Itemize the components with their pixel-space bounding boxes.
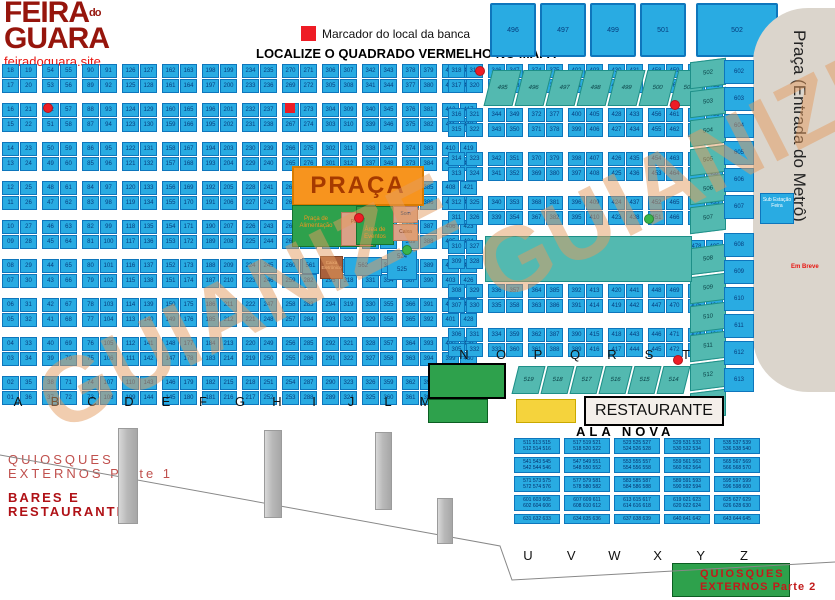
stall-cell: 378 <box>546 123 563 137</box>
stall-cell: 382 <box>546 211 563 225</box>
stall-cell: 436 <box>626 167 643 181</box>
stall-cell: 22 <box>20 118 37 132</box>
logo-line2: GUARA <box>4 26 164 52</box>
stall-cell: 380 <box>420 79 437 93</box>
stall-cell: 257 <box>282 313 299 327</box>
stall-cell: 233 <box>242 79 259 93</box>
stall-cell: 269 <box>282 79 299 93</box>
events-box: Área de Eventos <box>356 206 394 245</box>
stall-cell: 203 <box>220 142 237 156</box>
strip-cell: 610 <box>724 287 754 311</box>
stall-cell: 363 <box>528 299 545 313</box>
map-marker-dot <box>402 245 412 255</box>
green-block-2 <box>428 399 488 423</box>
stall-cell: 68 <box>60 313 77 327</box>
quiosques2-line1: QUIOSQUES <box>700 568 785 580</box>
stall-cell: 420 <box>608 284 625 298</box>
stall-cell: 355 <box>380 298 397 312</box>
stall-cell: 328 <box>362 337 379 351</box>
stall-column-N: 3183193173203163213153223143233133243123… <box>448 64 483 372</box>
stall-cell: 153 <box>162 235 179 249</box>
stall-cell: 327 <box>466 240 483 254</box>
stall-cell: 275 <box>300 142 317 156</box>
stall-cell: 221 <box>242 313 259 327</box>
column-letter-L: L <box>372 394 404 409</box>
stall-cell: 392 <box>568 284 585 298</box>
stall-cell: 173 <box>180 259 197 273</box>
quiosques2-line2: EXTERNOS Parte 2 <box>700 581 816 593</box>
strip-cell: 512 <box>690 360 726 391</box>
stall-column-G: 2342352332362322372312382302392292402282… <box>242 64 277 415</box>
stall-cell: 63 <box>60 220 77 234</box>
stall-cell: 51 <box>42 118 59 132</box>
stall-cell: 20 <box>20 79 37 93</box>
ala-nova-stall-box: 601 603 605602 604 606 <box>514 495 560 511</box>
stall-cell: 111 <box>122 352 139 366</box>
stall-cell: 39 <box>42 352 59 366</box>
stall-cell: 131 <box>140 142 157 156</box>
stall-cell: 466 <box>666 211 683 225</box>
ala-nova-stall-box: 640 641 642 <box>664 514 710 524</box>
column-letter-H: H <box>261 394 293 409</box>
stall-cell: 151 <box>162 274 179 288</box>
stall-cell: 320 <box>466 79 483 93</box>
stall-cell: 237 <box>260 103 277 117</box>
stall-cell: 171 <box>180 220 197 234</box>
stall-cell: 03 <box>2 352 19 366</box>
strip-cell: 502 <box>690 58 726 89</box>
stall-cell: 324 <box>466 167 483 181</box>
column-letter-D: D <box>113 394 145 409</box>
map-marker-dot <box>43 103 53 113</box>
sound-box: Som <box>393 206 418 223</box>
stall-cell: 377 <box>402 79 419 93</box>
ala-nova-stall-box: 559 561 563560 562 564 <box>664 457 710 473</box>
stall-cell: 318 <box>448 64 465 78</box>
stall-cell: 398 <box>568 152 585 166</box>
stall-cell: 415 <box>586 328 603 342</box>
stall-cell: 291 <box>322 352 339 366</box>
stall-cell: 152 <box>162 259 179 273</box>
stall-cell: 80 <box>82 259 99 273</box>
stall-cell: 35 <box>20 376 37 390</box>
stall-cell: 133 <box>140 181 157 195</box>
stall-cell: 425 <box>608 167 625 181</box>
stall-cell: 04 <box>2 337 19 351</box>
stall-cell: 315 <box>448 123 465 137</box>
column-letter-U: U <box>512 548 544 563</box>
stall-cell: 330 <box>362 298 379 312</box>
stall-cell: 346 <box>380 118 397 132</box>
stall-cell: 28 <box>20 235 37 249</box>
stall-cell: 231 <box>242 118 259 132</box>
stall-cell: 367 <box>528 211 545 225</box>
stall-cell: 186 <box>202 298 219 312</box>
stall-cell: 48 <box>42 181 59 195</box>
cash-box: Caixa <box>393 224 418 241</box>
stall-column-A: 1819172016211522142313241225112610270928… <box>2 64 37 415</box>
stall-cell: 352 <box>506 167 523 181</box>
stall-cell: 75 <box>82 352 99 366</box>
stall-cell: 21 <box>20 103 37 117</box>
column-letter-Q: Q <box>559 347 591 362</box>
stall-column-O: 3463473453483443493433503423513413523403… <box>488 64 523 372</box>
stall-cell: 159 <box>162 118 179 132</box>
strip-cell: 511 <box>690 331 726 362</box>
stall-cell: 317 <box>448 79 465 93</box>
stall-cell: 99 <box>100 220 117 234</box>
ala-nova-stall-box: 553 555 557554 556 558 <box>614 457 660 473</box>
ala-nova-stall-box: 637 638 639 <box>614 514 660 524</box>
stall-cell: 200 <box>220 79 237 93</box>
stall-cell: 143 <box>140 376 157 390</box>
stall-cell: 287 <box>300 376 317 390</box>
stall-cell: 94 <box>100 118 117 132</box>
column-letter-V: V <box>555 548 587 563</box>
strip-cell: 606 <box>724 168 754 192</box>
stall-cell: 393 <box>420 337 437 351</box>
praca-box: PRAÇA <box>292 166 424 206</box>
stall-cell: 170 <box>180 196 197 210</box>
column-letter-F: F <box>187 394 219 409</box>
stall-cell: 146 <box>162 376 179 390</box>
stall-cell: 164 <box>180 79 197 93</box>
stall-cell: 59 <box>60 142 77 156</box>
stall-cell: 82 <box>82 220 99 234</box>
stall-cell: 321 <box>340 337 357 351</box>
ala-nova-stall-box: 529 531 533530 532 534 <box>664 438 710 454</box>
stall-cell: 286 <box>300 352 317 366</box>
stall-cell: 236 <box>260 79 277 93</box>
stall-cell: 46 <box>42 220 59 234</box>
stall-cell: 117 <box>122 235 139 249</box>
stall-cell: 189 <box>202 235 219 249</box>
stall-cell: 377 <box>546 108 563 122</box>
ala-nova-stall-box: 547 549 551548 550 552 <box>564 457 610 473</box>
ala-nova-stall-box: 511 513 515512 514 516 <box>514 438 560 454</box>
stall-cell: 329 <box>466 284 483 298</box>
stall-cell: 400 <box>568 108 585 122</box>
stall-cell: 83 <box>82 196 99 210</box>
logo-mid: do <box>89 7 100 19</box>
stall-cell: 185 <box>202 313 219 327</box>
substation-box: Sub Estação Feira <box>760 193 794 224</box>
bares-line1: BARES E <box>8 490 80 505</box>
stall-cell: 307 <box>340 64 357 78</box>
stall-cell: 66 <box>60 274 77 288</box>
stall-cell: 358 <box>380 352 397 366</box>
stall-cell: 244 <box>260 235 277 249</box>
stall-cell: 95 <box>100 142 117 156</box>
stall-cell: 55 <box>60 64 77 78</box>
stall-cell: 69 <box>60 337 77 351</box>
stall-cell: 207 <box>220 220 237 234</box>
stall-cell: 102 <box>100 274 117 288</box>
stall-cell: 89 <box>82 79 99 93</box>
pillar <box>264 430 282 518</box>
stall-cell: 165 <box>180 103 197 117</box>
stall-cell: 142 <box>140 352 157 366</box>
stall-cell: 107 <box>100 376 117 390</box>
stall-cell: 382 <box>420 118 437 132</box>
stall-cell: 157 <box>162 157 179 171</box>
stall-cell: 140 <box>140 313 157 327</box>
stall-cell: 245 <box>260 259 277 273</box>
stall-cell: 130 <box>140 118 157 132</box>
stall-cell: 391 <box>420 298 437 312</box>
stall-cell: 344 <box>488 108 505 122</box>
stall-cell: 215 <box>220 376 237 390</box>
stall-cell: 338 <box>362 142 379 156</box>
stall-cell: 182 <box>202 376 219 390</box>
stall-cell: 96 <box>100 157 117 171</box>
stall-cell: 311 <box>448 211 465 225</box>
strip-cell: 504 <box>690 116 726 147</box>
stall-cell: 64 <box>60 235 77 249</box>
stall-cell: 343 <box>380 64 397 78</box>
stall-cell: 325 <box>466 196 483 210</box>
stall-cell: 397 <box>568 167 585 181</box>
stall-cell: 53 <box>42 79 59 93</box>
column-letter-I: I <box>298 394 330 409</box>
stall-cell: 86 <box>82 142 99 156</box>
strip-cell: 510 <box>690 302 726 333</box>
stall-cell: 305 <box>322 79 339 93</box>
stall-cell: 407 <box>586 152 603 166</box>
stall-cell: 57 <box>60 103 77 117</box>
strip-cell: 604 <box>724 114 754 138</box>
stall-cell: 314 <box>448 152 465 166</box>
stall-cell: 32 <box>20 313 37 327</box>
ala-nova-stall-box: 517 519 521518 520 522 <box>564 438 610 454</box>
stall-cell: 327 <box>362 352 379 366</box>
stall-cell: 368 <box>528 196 545 210</box>
ala-nova-stall-box: 631 632 633 <box>514 514 560 524</box>
empty-teal-block <box>485 236 692 282</box>
stall-cell: 190 <box>202 220 219 234</box>
stall-cell: 218 <box>242 376 259 390</box>
column-letter-A: A <box>2 394 34 409</box>
stall-cell: 414 <box>586 299 603 313</box>
stall-cell: 375 <box>402 118 419 132</box>
column-letter-G: G <box>224 394 256 409</box>
stall-cell: 175 <box>180 298 197 312</box>
stall-cell: 204 <box>220 157 237 171</box>
strip-cell: 609 <box>724 260 754 284</box>
stall-cell: 148 <box>162 337 179 351</box>
stall-cell: 381 <box>546 196 563 210</box>
ala-nova-stall-box: 619 621 623620 622 624 <box>664 495 710 511</box>
stall-cell: 118 <box>122 220 139 234</box>
ala-nova-stall-box: 634 635 636 <box>564 514 610 524</box>
stall-cell: 406 <box>586 123 603 137</box>
stall-cell: 43 <box>42 274 59 288</box>
stall-cell: 302 <box>322 142 339 156</box>
column-letter-O: O <box>485 347 517 362</box>
stall-cell: 388 <box>420 235 437 249</box>
stall-grid-n-t: 3183193173203163213153223143233133243123… <box>448 64 723 372</box>
stall-cell: 359 <box>380 376 397 390</box>
stall-column-F: 1981991972001962011952021942031932041922… <box>202 64 237 415</box>
top-stall-box: 501 <box>640 3 686 57</box>
stall-cell: 310 <box>448 240 465 254</box>
stall-cell: 49 <box>42 157 59 171</box>
stall-cell: 392 <box>420 313 437 327</box>
stall-cell: 399 <box>568 123 585 137</box>
quiosques1-line1: QUIOSQUES <box>8 452 114 467</box>
stall-cell: 127 <box>140 64 157 78</box>
stall-cell: 254 <box>282 376 299 390</box>
stall-cell: 124 <box>122 103 139 117</box>
stall-cell: 205 <box>220 181 237 195</box>
column-letter-C: C <box>76 394 108 409</box>
feira-map-canvas: FEIRAdo GUARA feiradoguara.site Marcador… <box>0 0 835 600</box>
stall-cell: 374 <box>402 142 419 156</box>
side-column-502-513: 502503504505506507508509510511512513 <box>690 60 726 420</box>
stall-cell: 172 <box>180 235 197 249</box>
stall-cell: 112 <box>122 337 139 351</box>
stall-cell: 224 <box>242 259 259 273</box>
stall-cell: 437 <box>626 196 643 210</box>
stall-cell: 435 <box>626 152 643 166</box>
stall-cell: 162 <box>162 64 179 78</box>
stall-cell: 44 <box>42 259 59 273</box>
stall-cell: 256 <box>282 337 299 351</box>
stall-cell: 340 <box>362 103 379 117</box>
stall-cell: 213 <box>220 337 237 351</box>
stall-cell: 199 <box>220 64 237 78</box>
stall-cell: 158 <box>162 142 179 156</box>
stall-cell: 50 <box>42 142 59 156</box>
stall-cell: 29 <box>20 259 37 273</box>
ala-nova-stall-box: 643 644 645 <box>714 514 760 524</box>
stall-cell: 419 <box>608 299 625 313</box>
stall-cell: 184 <box>202 337 219 351</box>
strip-cell: 602 <box>724 60 754 84</box>
stall-cell: 98 <box>100 196 117 210</box>
ala-nova-stall-box: 571 573 575572 574 576 <box>514 476 560 492</box>
stall-cell: 06 <box>2 298 19 312</box>
stall-cell: 359 <box>506 328 523 342</box>
top-stall-box: 496 <box>490 3 536 57</box>
ala-nova-grid: 511 513 515512 514 516517 519 521518 520… <box>514 438 760 527</box>
column-letters-n-t: NOPQRST <box>448 347 702 362</box>
stall-cell: 76 <box>82 337 99 351</box>
stall-cell: 156 <box>162 181 179 195</box>
strip-cell: 603 <box>724 87 754 111</box>
stall-cell: 113 <box>122 313 139 327</box>
column-letter-R: R <box>596 347 628 362</box>
column-letter-J: J <box>335 394 367 409</box>
stall-cell: 61 <box>60 181 77 195</box>
stall-cell: 149 <box>162 313 179 327</box>
stall-cell: 97 <box>100 181 117 195</box>
stall-cell: 128 <box>140 79 157 93</box>
top-stall-box: 499 <box>590 3 636 57</box>
stall-cell: 155 <box>162 196 179 210</box>
stall-cell: 13 <box>2 157 19 171</box>
stall-cell: 372 <box>528 108 545 122</box>
stall-cell: 141 <box>140 337 157 351</box>
stall-cell: 343 <box>488 123 505 137</box>
pillar <box>437 498 453 544</box>
stall-cell: 26 <box>20 196 37 210</box>
stall-cell: 336 <box>488 284 505 298</box>
stall-cell: 212 <box>220 313 237 327</box>
strip-cell: 509 <box>690 273 726 304</box>
stall-cell: 161 <box>162 79 179 93</box>
stall-cell: 92 <box>100 79 117 93</box>
ala-nova-stall-box: 577 579 581578 580 582 <box>564 476 610 492</box>
stall-cell: 308 <box>340 79 357 93</box>
stall-cell: 106 <box>100 352 117 366</box>
stall-cell: 328 <box>466 255 483 269</box>
stall-cell: 187 <box>202 274 219 288</box>
stall-cell: 16 <box>2 103 19 117</box>
stall-cell-562: 562 <box>344 257 382 276</box>
stall-cell: 10 <box>2 220 19 234</box>
strip-cell: 507 <box>690 203 726 234</box>
stall-cell: 371 <box>528 123 545 137</box>
stall-cell: 79 <box>82 274 99 288</box>
stall-cell: 163 <box>180 64 197 78</box>
stall-cell: 364 <box>402 337 419 351</box>
stall-cell: 362 <box>402 376 419 390</box>
stall-cell: 334 <box>488 328 505 342</box>
stall-cell: 160 <box>162 103 179 117</box>
stall-cell: 195 <box>202 118 219 132</box>
stall-column-E: 1621631611641601651591661581671571681561… <box>162 64 197 415</box>
stall-cell: 354 <box>506 211 523 225</box>
stall-cell: 88 <box>82 103 99 117</box>
stall-cell: 424 <box>608 196 625 210</box>
stall-cell: 258 <box>282 298 299 312</box>
stall-column-D: 1261271251281241291231301221311211321201… <box>122 64 157 415</box>
stall-cell: 273 <box>300 103 317 117</box>
stall-cell: 214 <box>220 352 237 366</box>
stall-cell: 427 <box>608 123 625 137</box>
stall-cell: 316 <box>448 108 465 122</box>
column-letter-B: B <box>39 394 71 409</box>
stall-cell: 409 <box>586 196 603 210</box>
stall-cell: 313 <box>448 167 465 181</box>
stall-cell: 192 <box>202 181 219 195</box>
stall-cell: 408 <box>586 167 603 181</box>
ala-nova-stall-box: 589 591 593590 592 594 <box>664 476 710 492</box>
stall-cell: 239 <box>260 142 277 156</box>
stall-cell: 123 <box>122 118 139 132</box>
stall-cell: 84 <box>82 181 99 195</box>
stall-cell: 322 <box>340 352 357 366</box>
stall-cell: 193 <box>202 157 219 171</box>
stall-column-B: 5455535652575158505949604861476246634564… <box>42 64 77 415</box>
top-stall-box: 497 <box>540 3 586 57</box>
pillar <box>375 432 392 510</box>
stall-cell: 85 <box>82 157 99 171</box>
ala-nova-stall-box: 595 597 599596 598 600 <box>714 476 760 492</box>
stall-cell: 220 <box>242 337 259 351</box>
stall-cell: 166 <box>180 118 197 132</box>
top-stall-boxes: 496497499501502 <box>490 3 778 57</box>
stall-cell: 331 <box>466 328 483 342</box>
stall-cell: 326 <box>362 376 379 390</box>
stall-cell: 169 <box>180 181 197 195</box>
stall-cell: 308 <box>448 284 465 298</box>
stall-cell: 469 <box>666 284 683 298</box>
stall-cell: 247 <box>260 298 277 312</box>
stall-cell: 274 <box>300 118 317 132</box>
stall-cell: 255 <box>282 352 299 366</box>
